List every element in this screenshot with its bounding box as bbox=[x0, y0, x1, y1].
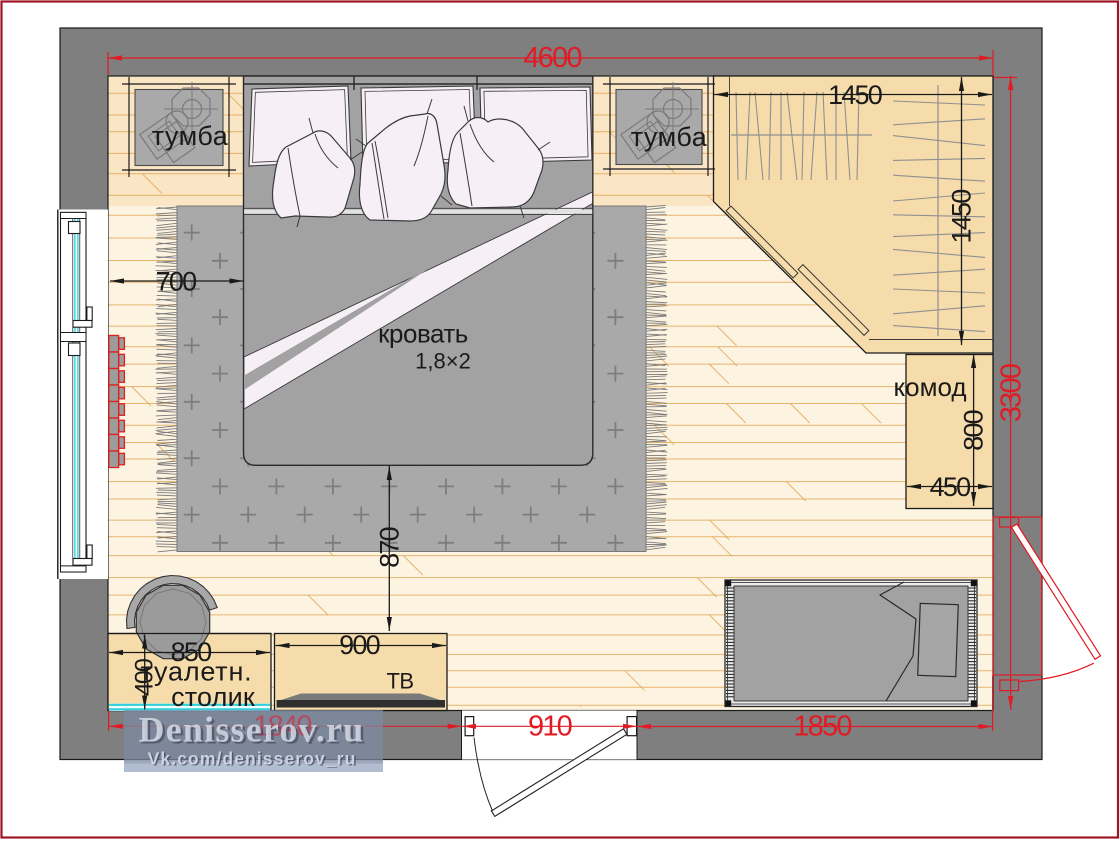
svg-text:910: 910 bbox=[528, 710, 572, 742]
svg-text:3300: 3300 bbox=[996, 364, 1028, 422]
svg-text:4600: 4600 bbox=[523, 42, 581, 74]
svg-text:столик: столик bbox=[171, 682, 255, 712]
svg-text:450: 450 bbox=[930, 472, 970, 502]
svg-text:1850: 1850 bbox=[793, 711, 851, 743]
svg-text:800: 800 bbox=[959, 410, 989, 450]
svg-text:900: 900 bbox=[339, 630, 379, 660]
svg-text:комод: комод bbox=[893, 372, 966, 402]
svg-text:870: 870 bbox=[374, 527, 404, 567]
svg-text:ТВ: ТВ bbox=[386, 669, 413, 694]
svg-text:1,8×2: 1,8×2 bbox=[415, 349, 471, 374]
svg-text:Denisserov.ru: Denisserov.ru bbox=[139, 710, 365, 750]
svg-text:1450: 1450 bbox=[947, 190, 977, 244]
svg-text:Vk.com/denisserov_ru: Vk.com/denisserov_ru bbox=[148, 749, 357, 769]
svg-text:кровать: кровать bbox=[378, 319, 468, 349]
svg-text:тумба: тумба bbox=[631, 122, 708, 152]
svg-text:тумба: тумба bbox=[152, 121, 229, 151]
svg-text:1450: 1450 bbox=[828, 80, 882, 110]
svg-text:700: 700 bbox=[156, 267, 196, 297]
